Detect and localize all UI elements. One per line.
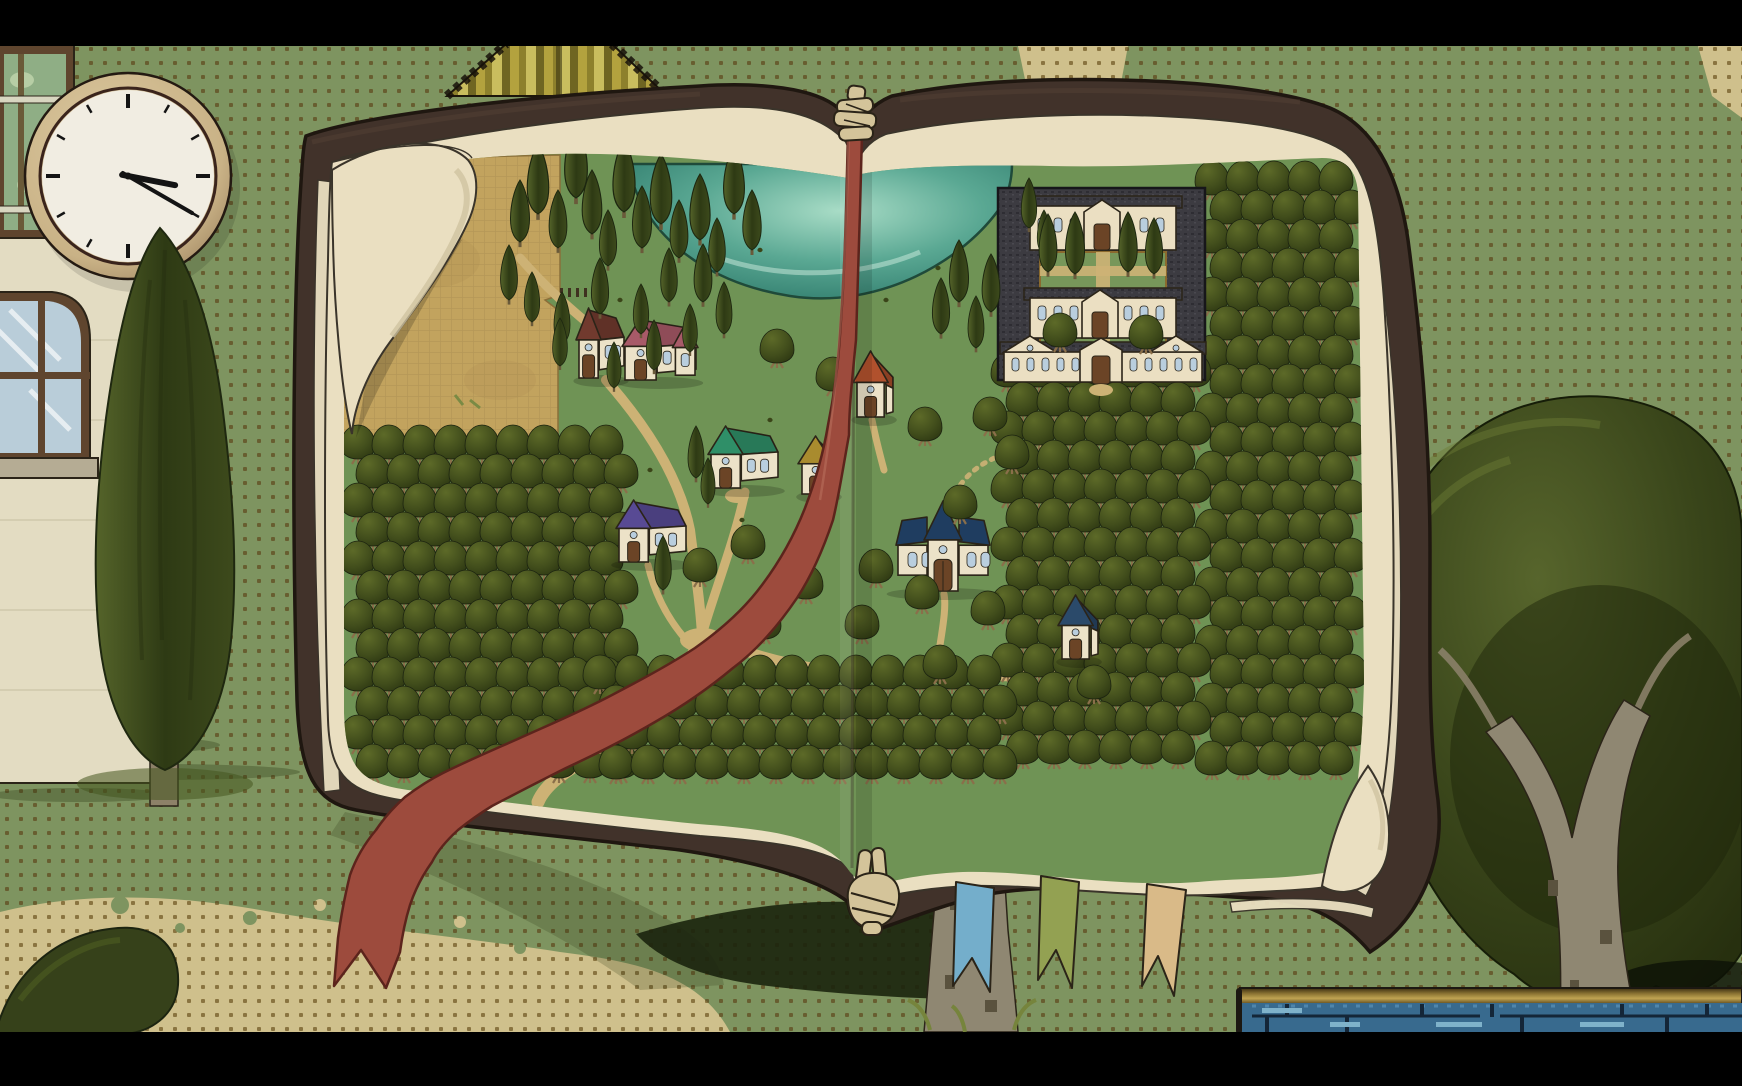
letterbox-top	[0, 0, 1742, 46]
map-speck	[617, 298, 622, 302]
map-speck	[767, 418, 772, 422]
blue-window	[0, 292, 98, 478]
map-speck	[757, 248, 762, 252]
map-speck	[935, 266, 940, 270]
letterbox-bottom	[0, 1032, 1742, 1086]
map-speck	[739, 518, 744, 522]
pool	[1236, 988, 1742, 1034]
game-screen	[0, 0, 1742, 1086]
map-speck	[883, 298, 888, 302]
scene-canvas	[0, 0, 1742, 1086]
map-speck	[647, 468, 652, 472]
